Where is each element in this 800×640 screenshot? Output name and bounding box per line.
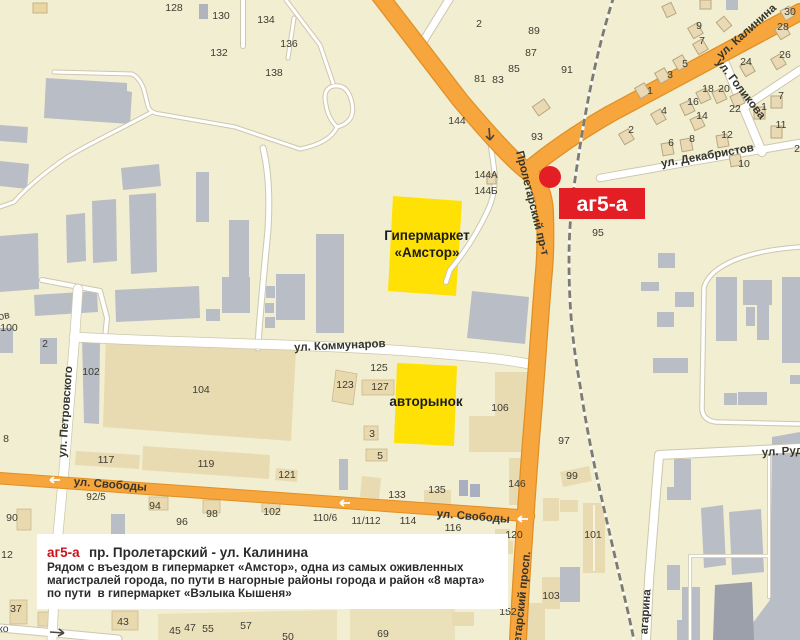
svg-text:89: 89	[528, 25, 540, 37]
svg-text:7: 7	[699, 35, 705, 47]
svg-text:119: 119	[198, 458, 215, 470]
svg-text:37: 37	[10, 603, 22, 615]
svg-text:87: 87	[525, 47, 537, 59]
svg-text:43: 43	[117, 616, 129, 628]
svg-text:2: 2	[628, 124, 634, 136]
svg-text:12: 12	[721, 129, 733, 141]
svg-text:128: 128	[165, 2, 183, 14]
svg-text:125: 125	[370, 362, 388, 374]
svg-text:104: 104	[192, 384, 210, 396]
svg-text:136: 136	[280, 38, 298, 50]
svg-text:132: 132	[210, 47, 228, 59]
svg-text:92/5: 92/5	[86, 492, 106, 503]
svg-text:2: 2	[42, 338, 48, 350]
svg-text:90: 90	[6, 512, 18, 524]
svg-text:7: 7	[778, 90, 784, 102]
svg-text:99: 99	[566, 470, 578, 482]
svg-text:95: 95	[592, 227, 604, 239]
svg-text:Гипермаркет: Гипермаркет	[384, 228, 470, 243]
svg-text:26: 26	[779, 49, 791, 61]
svg-text:110/6: 110/6	[313, 513, 338, 524]
svg-text:10: 10	[738, 158, 750, 170]
svg-text:127: 127	[371, 381, 389, 393]
svg-text:2: 2	[794, 143, 800, 155]
svg-text:81: 81	[474, 73, 486, 85]
svg-text:5: 5	[377, 450, 383, 462]
svg-text:Рядом с въездом в гипермаркет: Рядом с въездом в гипермаркет «Амстор», …	[47, 561, 464, 574]
svg-text:83: 83	[492, 74, 504, 86]
svg-text:130: 130	[212, 10, 230, 22]
svg-text:3: 3	[369, 428, 375, 440]
svg-text:57: 57	[240, 620, 252, 632]
svg-text:2: 2	[476, 18, 482, 30]
svg-text:135: 135	[428, 484, 446, 496]
svg-text:69: 69	[377, 628, 389, 640]
svg-text:91: 91	[561, 64, 573, 76]
svg-text:100: 100	[0, 322, 18, 334]
svg-text:1: 1	[761, 101, 767, 113]
svg-text:96: 96	[176, 516, 188, 528]
svg-text:1: 1	[647, 85, 653, 97]
svg-text:103: 103	[542, 590, 560, 602]
svg-text:45: 45	[169, 625, 181, 637]
svg-text:144А: 144А	[474, 170, 498, 181]
svg-text:аг5-а: аг5-а	[47, 545, 80, 560]
svg-text:138: 138	[265, 67, 283, 79]
svg-text:28: 28	[777, 21, 789, 33]
svg-text:ко: ко	[0, 623, 9, 635]
svg-text:144Б: 144Б	[474, 186, 498, 197]
svg-text:94: 94	[149, 500, 161, 512]
svg-text:93: 93	[531, 131, 543, 143]
svg-text:106: 106	[491, 402, 509, 414]
svg-text:144: 144	[448, 115, 466, 127]
svg-text:«Амстор»: «Амстор»	[394, 245, 459, 260]
svg-text:30: 30	[784, 6, 796, 18]
svg-text:11: 11	[776, 119, 787, 131]
svg-text:123: 123	[336, 379, 354, 391]
svg-text:146: 146	[508, 478, 526, 490]
svg-text:102: 102	[263, 506, 281, 518]
svg-text:8: 8	[3, 433, 9, 445]
svg-text:по пути в гипермаркет «Вэлыка: по пути в гипермаркет «Вэлыка Кышеня»	[47, 587, 292, 600]
svg-text:102: 102	[82, 366, 100, 378]
svg-text:133: 133	[388, 489, 406, 501]
svg-text:5: 5	[682, 58, 688, 70]
svg-text:авторынок: авторынок	[389, 394, 462, 409]
svg-text:11/112: 11/112	[351, 516, 381, 527]
svg-text:3: 3	[667, 69, 673, 81]
svg-text:116: 116	[445, 522, 462, 534]
svg-text:50: 50	[282, 631, 294, 640]
svg-text:24: 24	[740, 56, 752, 68]
svg-text:55: 55	[202, 623, 214, 635]
svg-text:121: 121	[278, 469, 296, 481]
svg-text:20: 20	[718, 83, 730, 95]
svg-text:магистралей города, по пути в: магистралей города, по пути в нагорные р…	[47, 574, 485, 587]
svg-text:117: 117	[98, 454, 115, 466]
svg-text:134: 134	[257, 14, 275, 26]
svg-text:пр. Пролетарский - ул. Калинин: пр. Пролетарский - ул. Калинина	[89, 545, 309, 560]
svg-text:4: 4	[661, 105, 667, 117]
svg-text:6: 6	[668, 137, 674, 149]
svg-text:8: 8	[689, 133, 695, 145]
svg-text:16: 16	[687, 96, 699, 108]
svg-text:14: 14	[696, 110, 708, 122]
svg-text:97: 97	[558, 435, 570, 447]
svg-text:114: 114	[400, 515, 417, 527]
svg-text:18: 18	[702, 83, 714, 95]
svg-text:12: 12	[1, 549, 13, 561]
svg-text:аг5-а: аг5-а	[577, 193, 628, 216]
svg-text:22: 22	[729, 103, 741, 115]
svg-text:98: 98	[206, 508, 218, 520]
svg-text:9: 9	[696, 20, 702, 32]
svg-text:47: 47	[184, 622, 196, 634]
svg-text:85: 85	[508, 63, 520, 75]
svg-text:ул. Рудне: ул. Рудне	[762, 444, 800, 459]
svg-text:101: 101	[584, 529, 602, 541]
